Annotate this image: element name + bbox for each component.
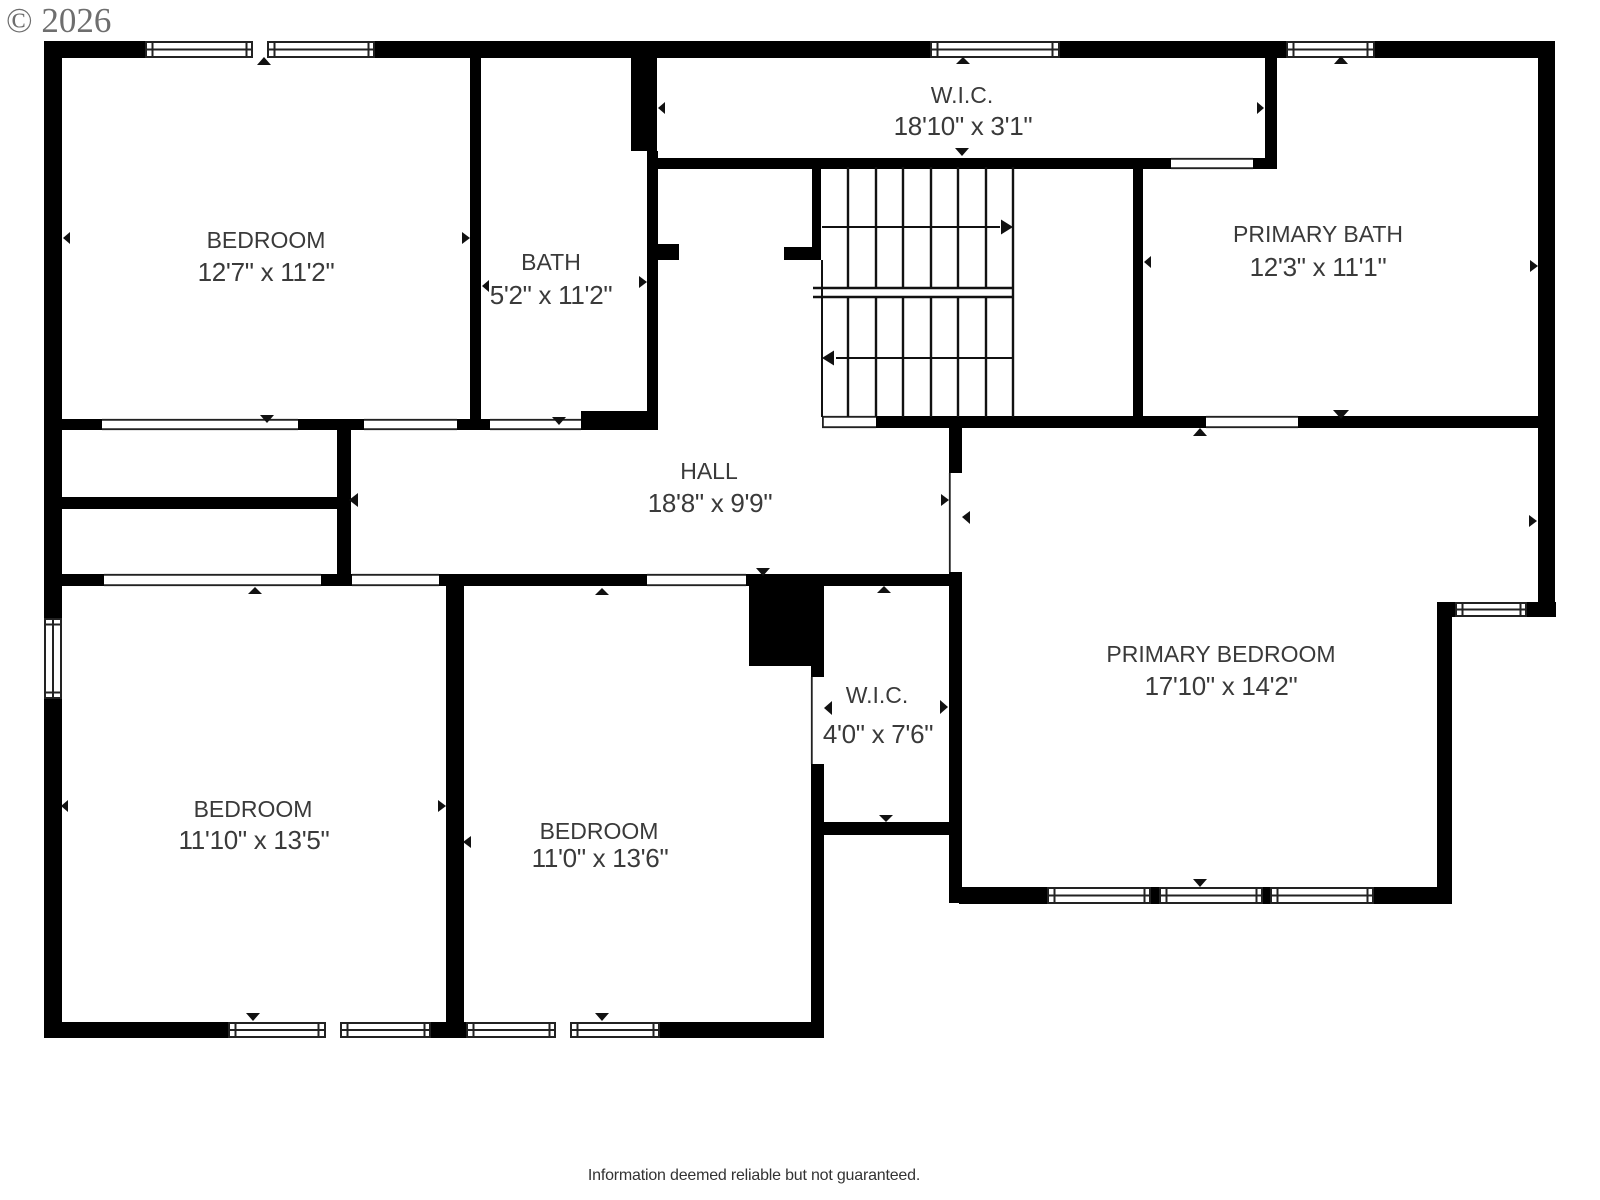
svg-text:BEDROOM: BEDROOM [540,818,659,844]
svg-text:BATH: BATH [521,249,581,275]
svg-text:4'0" x 7'6": 4'0" x 7'6" [823,719,933,749]
svg-text:PRIMARY BATH: PRIMARY BATH [1233,221,1403,247]
svg-text:W.I.C.: W.I.C. [931,82,994,108]
svg-text:PRIMARY BEDROOM: PRIMARY BEDROOM [1106,641,1335,667]
svg-text:12'3" x 11'1": 12'3" x 11'1" [1250,252,1387,282]
svg-text:18'8" x 9'9": 18'8" x 9'9" [648,488,773,518]
svg-text:BEDROOM: BEDROOM [194,796,313,822]
svg-text:5'2" x 11'2": 5'2" x 11'2" [490,280,613,310]
svg-text:11'0" x 13'6": 11'0" x 13'6" [532,843,669,873]
svg-text:17'10" x 14'2": 17'10" x 14'2" [1145,671,1298,701]
svg-text:11'10" x 13'5": 11'10" x 13'5" [179,825,330,855]
svg-text:W.I.C.: W.I.C. [846,682,909,708]
svg-text:HALL: HALL [680,458,738,484]
svg-text:12'7" x 11'2": 12'7" x 11'2" [198,257,335,287]
svg-text:18'10" x 3'1": 18'10" x 3'1" [894,111,1033,141]
svg-text:BEDROOM: BEDROOM [207,227,326,253]
svg-text:Information deemed reliable bu: Information deemed reliable but not guar… [588,1167,920,1184]
svg-text:© 2026: © 2026 [6,1,111,40]
